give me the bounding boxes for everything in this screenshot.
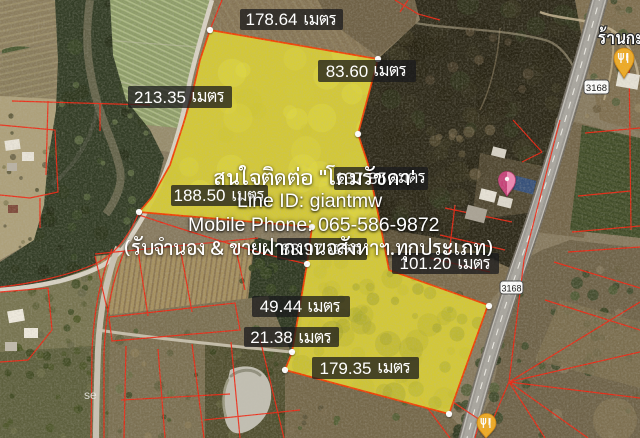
svg-text:se: se (84, 388, 97, 402)
